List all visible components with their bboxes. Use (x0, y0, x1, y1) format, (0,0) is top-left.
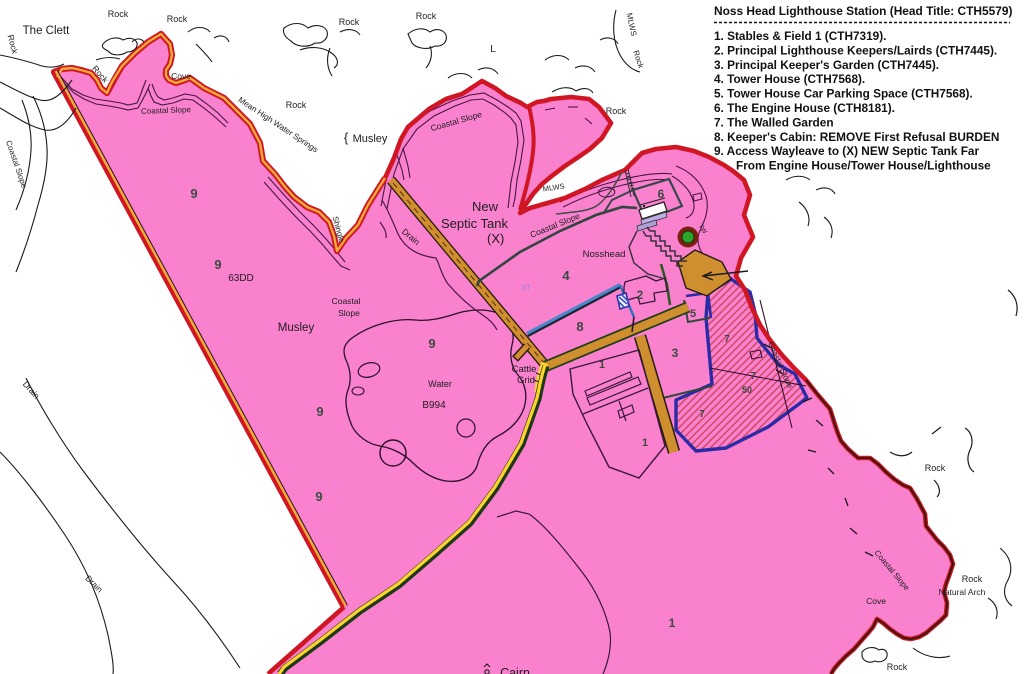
svg-text:7. The Walled Garden: 7. The Walled Garden (714, 115, 834, 129)
svg-text:Rock: Rock (962, 574, 983, 584)
svg-text:9. Access Wayleave to (X) NEW: 9. Access Wayleave to (X) NEW Septic Tan… (714, 144, 979, 158)
svg-text:5: 5 (690, 308, 696, 320)
svg-text:Coastal Slope: Coastal Slope (141, 105, 192, 116)
svg-text:Septic Tank: Septic Tank (441, 216, 508, 231)
svg-text:Rock: Rock (339, 17, 360, 27)
svg-text:Water: Water (428, 379, 452, 389)
svg-text:ST: ST (522, 285, 532, 292)
svg-text:5. Tower House Car Parking Spa: 5. Tower House Car Parking Space (CTH756… (714, 87, 973, 101)
svg-text:Musley: Musley (353, 133, 388, 145)
svg-text:Rock: Rock (167, 14, 188, 24)
svg-text:6. The Engine House (CTH8181).: 6. The Engine House (CTH8181). (714, 101, 895, 115)
svg-text:63DD: 63DD (228, 273, 254, 284)
svg-text:Coastal: Coastal (332, 296, 361, 306)
svg-text:Rock: Rock (925, 463, 946, 473)
svg-text:Cattle: Cattle (512, 364, 537, 375)
svg-text:B994: B994 (422, 400, 446, 411)
svg-text:7: 7 (724, 334, 730, 345)
svg-text:6: 6 (658, 187, 665, 201)
svg-text:L: L (490, 44, 496, 55)
svg-text:8. Keeper's Cabin: REMOVE Firs: 8. Keeper's Cabin: REMOVE First Refusal … (714, 130, 999, 144)
svg-text:Musley: Musley (278, 322, 315, 334)
svg-text:From Engine House/Tower House/: From Engine House/Tower House/Lighthouse (736, 159, 991, 173)
svg-text:2. Principal Lighthouse Keeper: 2. Principal Lighthouse Keepers/Lairds (… (714, 43, 997, 57)
svg-text:The Clett: The Clett (23, 25, 70, 37)
svg-text:3. Principal Keeper's Garden (: 3. Principal Keeper's Garden (CTH7445). (714, 58, 939, 72)
svg-text:Rock: Rock (286, 100, 307, 110)
svg-text:1: 1 (642, 437, 648, 449)
svg-text:Cairn: Cairn (500, 666, 530, 674)
svg-text:Rock: Rock (416, 11, 437, 21)
svg-text:9: 9 (428, 336, 435, 351)
svg-text:9: 9 (214, 257, 221, 272)
svg-text:3: 3 (672, 346, 679, 360)
svg-text:50: 50 (742, 385, 752, 395)
svg-text:7: 7 (699, 409, 705, 420)
svg-text:1: 1 (669, 616, 676, 630)
svg-text:4: 4 (562, 268, 570, 283)
svg-text:4. Tower House (CTH7568).: 4. Tower House (CTH7568). (714, 72, 865, 86)
svg-text:Cove: Cove (866, 596, 886, 606)
svg-text:Rock: Rock (887, 662, 908, 672)
svg-text:Noss Head Lighthouse Station (: Noss Head Lighthouse Station (Head Title… (714, 4, 1012, 18)
svg-text:Slope: Slope (338, 308, 360, 318)
svg-text:{: { (344, 130, 349, 145)
svg-text:1: 1 (599, 359, 605, 371)
svg-text:9: 9 (316, 404, 323, 419)
svg-text:9: 9 (315, 489, 322, 504)
svg-text:New: New (472, 199, 499, 214)
svg-text:2: 2 (637, 288, 644, 302)
svg-text:Cove: Cove (171, 71, 191, 81)
svg-text:Nosshead: Nosshead (583, 249, 626, 260)
svg-text:Rock: Rock (108, 9, 129, 19)
svg-text:1. Stables & Field 1 (CTH7319): 1. Stables & Field 1 (CTH7319). (714, 29, 886, 43)
svg-text:7: 7 (750, 371, 756, 382)
svg-text:Rock: Rock (606, 106, 627, 116)
svg-text:Grid: Grid (517, 375, 535, 386)
svg-text:Natural Arch: Natural Arch (939, 587, 986, 597)
svg-text:(X): (X) (487, 231, 504, 246)
svg-text:9: 9 (190, 186, 197, 201)
svg-text:8: 8 (576, 319, 583, 334)
